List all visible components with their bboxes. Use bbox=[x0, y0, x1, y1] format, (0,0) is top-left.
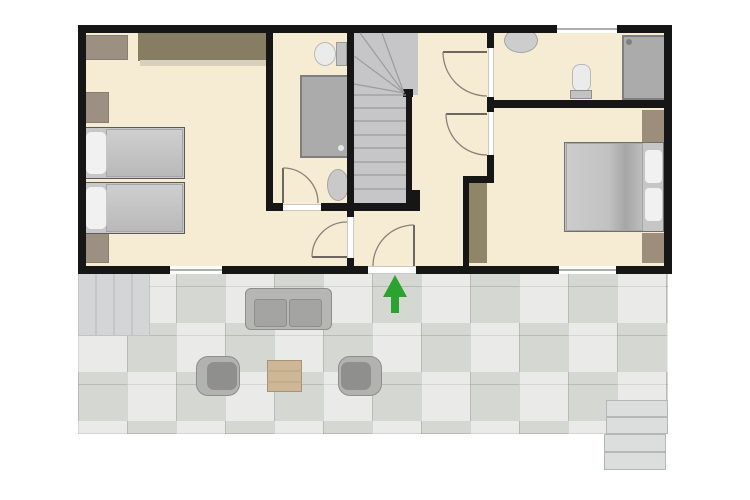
threshold-entrance bbox=[368, 266, 416, 274]
threshold-hall-door-lower bbox=[488, 112, 494, 155]
window-bathroom2 bbox=[557, 25, 617, 33]
threshold-bathroom1-door bbox=[283, 204, 321, 211]
window-bedroom1 bbox=[170, 266, 222, 274]
floor-plan-canvas bbox=[0, 0, 750, 500]
threshold-vestibule-door bbox=[347, 217, 354, 258]
openings-layer bbox=[0, 0, 750, 500]
window-bedroom2 bbox=[559, 266, 616, 274]
threshold-hall-door-upper bbox=[488, 48, 494, 97]
